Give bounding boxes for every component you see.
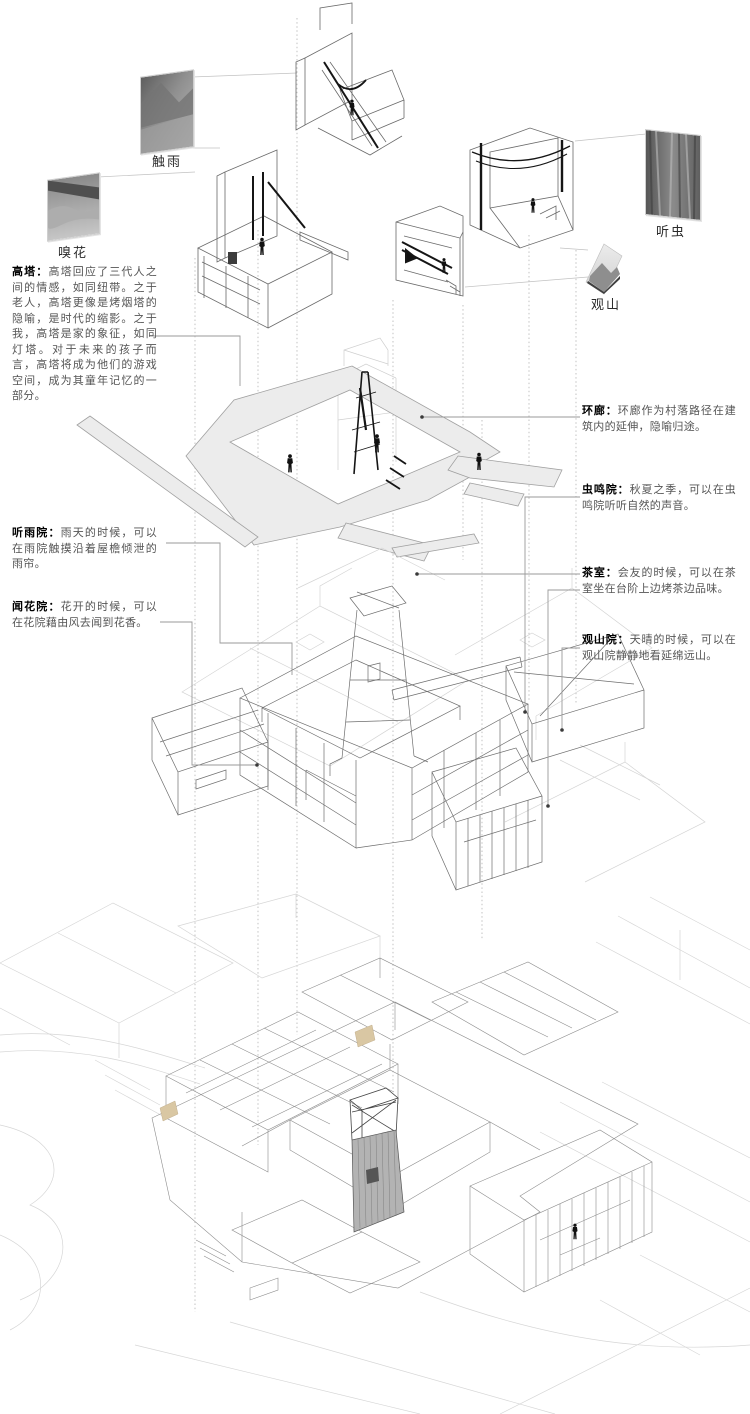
smell-flower-photo bbox=[47, 172, 100, 241]
smell-flower-label: 嗅花 bbox=[44, 242, 102, 261]
note-insect-court-title: 虫鸣院： bbox=[582, 484, 630, 496]
site-tower bbox=[350, 1088, 404, 1232]
touch-rain-label: 触雨 bbox=[138, 151, 196, 170]
note-mountain-court: 观山院：天晴的时候，可以在观山院静静地看延绵远山。 bbox=[582, 633, 736, 664]
note-ring-corridor-title: 环廊： bbox=[582, 405, 618, 417]
note-flower-court: 闻花院：花开的时候，可以在花院藉由风去闻到花香。 bbox=[12, 600, 157, 631]
note-tower-title: 高塔： bbox=[12, 266, 48, 278]
note-tea-room: 茶室：会友的时候，可以在茶室坐在台阶上边烤茶边品味。 bbox=[582, 566, 736, 597]
listen-insect-photo bbox=[645, 129, 701, 221]
fragment-view-mountain bbox=[396, 206, 463, 296]
touch-rain-photo bbox=[140, 69, 194, 155]
view-mountain-label: 观山 bbox=[577, 294, 635, 313]
note-flower-court-title: 闻花院： bbox=[12, 601, 61, 613]
listen-insect-label: 听虫 bbox=[642, 221, 700, 240]
leader-lines bbox=[150, 336, 580, 806]
ghost-roofs bbox=[182, 548, 705, 882]
view-mountain-photo bbox=[584, 243, 624, 295]
fragment-listen-insect bbox=[470, 128, 573, 248]
leader-tea-room-b bbox=[548, 590, 580, 806]
note-tower-body: 高塔回应了三代人之间的情感，如同纽带。之于老人，高塔更像是烤烟塔的隐喻，是时代的… bbox=[12, 266, 157, 402]
site-axon bbox=[0, 894, 750, 1414]
fragment-touch-rain bbox=[296, 3, 404, 155]
drawing-canvas bbox=[0, 0, 750, 1414]
note-tea-room-title: 茶室： bbox=[582, 567, 618, 579]
note-tower: 高塔：高塔回应了三代人之间的情感，如同纽带。之于老人，高塔更像是烤烟塔的隐喻，是… bbox=[12, 265, 157, 405]
note-rain-court: 听雨院：雨天的时候，可以在雨院触摸沿着屋檐倾泄的雨帘。 bbox=[12, 526, 157, 573]
note-rain-court-title: 听雨院： bbox=[12, 527, 61, 539]
tan-wall-accents bbox=[160, 1025, 375, 1121]
fragment-smell-flower bbox=[198, 150, 348, 328]
leader-insect-court bbox=[525, 497, 580, 712]
note-mountain-court-title: 观山院： bbox=[582, 634, 630, 646]
leader-rain-court bbox=[166, 543, 292, 675]
roof-axon bbox=[152, 548, 705, 890]
note-ring-corridor: 环廊：环廊作为村落路径在建筑内的延伸，隐喻归途。 bbox=[582, 404, 736, 435]
exploded-axon-diagram: 触雨 嗅花 听虫 观山 高塔：高塔回应了三代人之间的情感，如同纽带。之于老人，高… bbox=[0, 0, 750, 1414]
note-insect-court: 虫鸣院：秋夏之季，可以在虫鸣院听听自然的声音。 bbox=[582, 483, 736, 514]
